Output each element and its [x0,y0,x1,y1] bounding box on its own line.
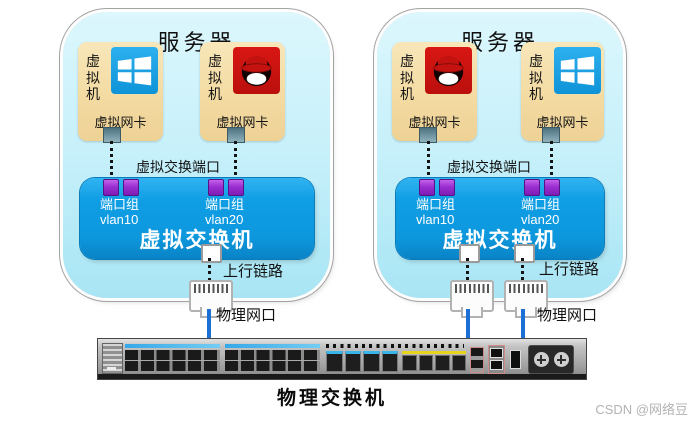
windows-logo-icon [111,47,158,94]
switch-port-block-2 [225,344,320,372]
vm-to-vswitch-dotted-link [234,141,237,181]
vswitch-label: 虚拟交换机 [396,224,604,254]
watermark: CSDN @网络豆 [595,399,688,418]
vm-label: 虚拟机 [400,53,415,103]
vm-label: 虚拟机 [529,53,544,103]
port-group-name: 端口组 [416,197,455,212]
port-group-vlan10: 端口组 vlan10 [416,197,455,227]
vswitch-ports-label: 虚拟交换端口 [447,157,531,177]
sfp-port [402,355,417,371]
sfp-port [452,355,467,371]
uplink-connector [459,244,480,263]
uplink-dotted-link [208,258,211,281]
physical-link-line [207,309,211,339]
switch-left-panel [102,343,123,374]
switch-console-port [470,347,484,373]
physical-switch-label: 物理交换机 [277,383,387,410]
virtualization-network-diagram: 服务器 虚拟机 虚拟网卡 虚拟机 虚拟网卡 虚拟交换端口 [0,0,694,422]
uplink-label: 上行链路 [539,258,599,279]
rj45-pins [455,284,489,293]
rj45-tab [515,307,537,318]
port-group-name: 端口组 [521,197,560,212]
rj45-tab [461,307,483,318]
vswitch-port [419,179,435,196]
sfp-port [345,351,362,372]
vnic-label: 虚拟网卡 [521,112,604,131]
vswitch-port [123,179,139,196]
physical-switch [97,338,587,380]
switch-led-strip [125,344,220,348]
vm-box-redhat: 虚拟机 虚拟网卡 [392,42,477,141]
vm-box-windows: 虚拟机 虚拟网卡 [521,42,604,141]
redhat-logo-icon [425,47,472,94]
vm-to-vswitch-dotted-link [427,141,430,181]
sfp-port [326,351,343,372]
sfp-port [363,351,380,372]
vm-box-redhat: 虚拟机 虚拟网卡 [200,42,285,141]
switch-led-strip [225,344,320,348]
switch-port-block-1 [125,344,220,372]
vswitch-port [544,179,560,196]
rj45-connector-icon [450,280,494,312]
switch-port-row [125,350,220,360]
vm-box-windows: 虚拟机 虚拟网卡 [78,42,163,141]
usb-slot [490,348,503,358]
windows-logo-icon [554,47,601,94]
switch-sfp-ports [326,351,398,372]
vswitch-ports-label: 虚拟交换端口 [136,157,220,177]
port-group-vlan20: 端口组 vlan20 [205,197,244,227]
vswitch-port [439,179,455,196]
sfp-port [435,355,450,371]
port-group-vlan20: 端口组 vlan20 [521,197,560,227]
switch-psu [528,345,574,374]
uplink-connector [201,244,222,263]
vm-label: 虚拟机 [86,53,101,103]
psu-socket [554,352,569,367]
physical-link-line [466,309,470,339]
uplink-connector [514,244,535,263]
switch-mgmt-port [510,350,521,369]
physical-port-label: 物理网口 [216,304,276,325]
vswitch-box: 端口组 vlan10 端口组 vlan20 虚拟交换机 [396,178,604,259]
vm-to-vswitch-dotted-link [110,141,113,181]
switch-led-row [326,344,464,348]
uplink-dotted-link [466,258,469,280]
sfp-port [382,351,399,372]
switch-uplink-ports [402,351,466,372]
psu-socket [534,352,549,367]
vswitch-port [524,179,540,196]
sfp-port [419,355,434,371]
port-group-name: 端口组 [205,197,244,212]
vswitch-box: 端口组 vlan10 端口组 vlan20 虚拟交换机 [80,178,314,259]
switch-port-row [225,350,320,360]
vswitch-port [103,179,119,196]
rj45-pins [194,284,228,293]
switch-usb-ports [488,345,505,374]
uplink-label: 上行链路 [223,260,283,281]
vm-label: 虚拟机 [208,53,223,103]
redhat-logo-icon [233,47,280,94]
uplink-dotted-link [521,258,524,280]
physical-port-label: 物理网口 [537,304,597,325]
port-group-name: 端口组 [100,197,139,212]
switch-port-row [225,361,320,371]
port-group-vlan10: 端口组 vlan10 [100,197,139,227]
vswitch-label: 虚拟交换机 [80,224,314,254]
vm-to-vswitch-dotted-link [550,141,553,181]
physical-link-line [521,309,525,339]
switch-yellow-strip [402,351,466,354]
vswitch-port [208,179,224,196]
switch-port-row [125,361,220,371]
vswitch-port [228,179,244,196]
switch-panel-button [107,367,116,370]
usb-slot [490,360,503,370]
rj45-pins [509,284,543,293]
